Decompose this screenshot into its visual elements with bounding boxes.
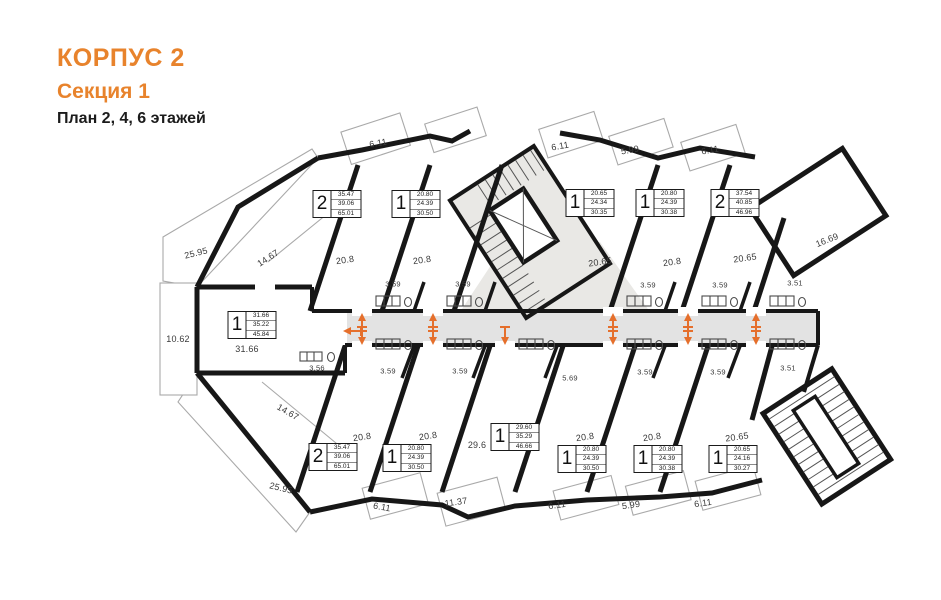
floors-subtitle: План 2, 4, 6 этажей <box>57 110 206 128</box>
section-title: Секция 1 <box>57 80 206 104</box>
right-staircase <box>763 369 891 504</box>
floor-plan-page: КОРПУС 2 Секция 1 План 2, 4, 6 этажей <box>0 0 941 600</box>
building-title: КОРПУС 2 <box>57 44 206 73</box>
plan-header: КОРПУС 2 Секция 1 План 2, 4, 6 этажей <box>57 44 206 128</box>
central-corridor <box>347 312 818 345</box>
